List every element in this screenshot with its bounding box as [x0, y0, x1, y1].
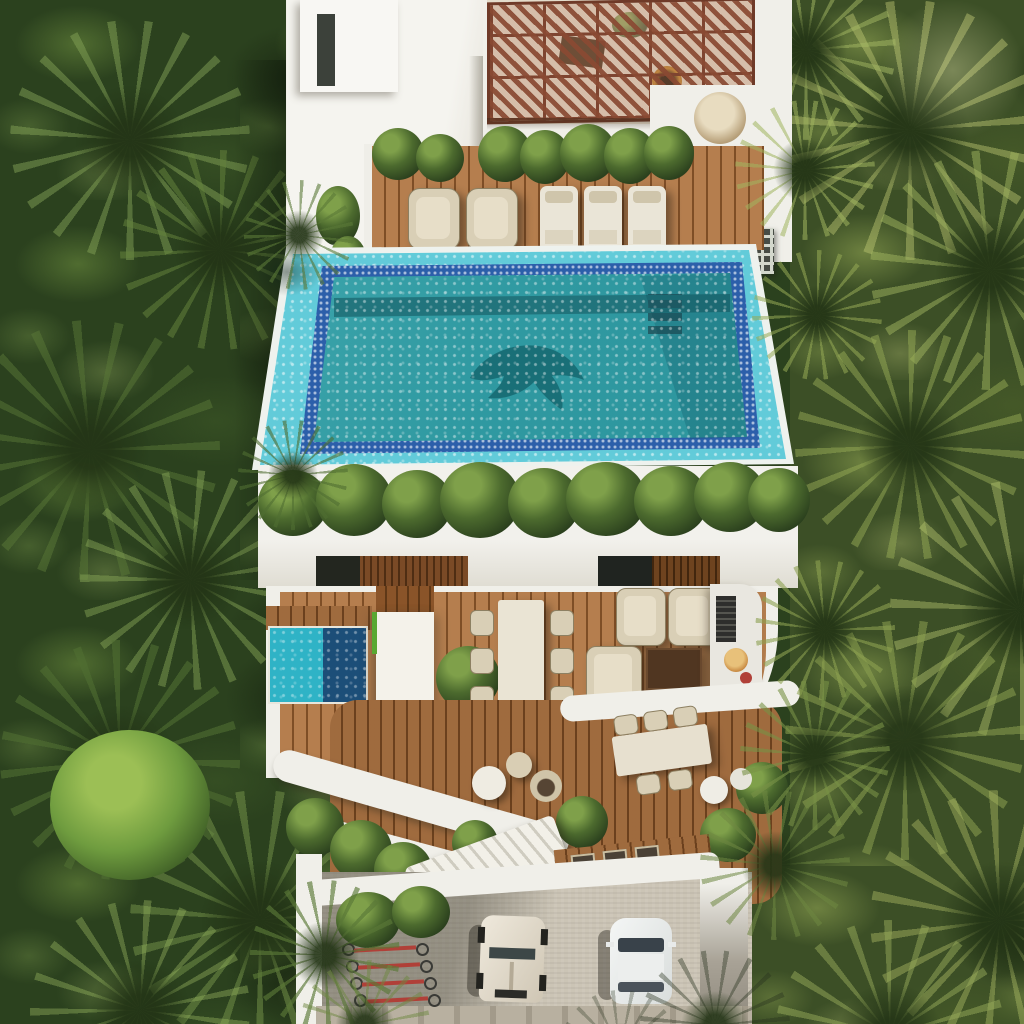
sun-lounger	[628, 186, 666, 252]
car-mirror	[668, 942, 676, 947]
round-planter	[700, 776, 728, 804]
dining-chair	[470, 610, 494, 636]
window-glass	[316, 556, 360, 590]
lounge-armchair	[616, 588, 666, 646]
car-wheel	[476, 973, 484, 989]
round-pouf	[506, 752, 532, 778]
round-chair	[530, 770, 562, 802]
window-glass	[598, 556, 652, 590]
bright-bush-corner	[50, 730, 210, 880]
sun-lounger	[540, 186, 578, 252]
armchair-cushion	[416, 197, 450, 239]
round-pouf	[472, 766, 506, 800]
car-grille	[495, 989, 527, 998]
car-wheel	[541, 929, 549, 945]
hedge-plant	[748, 468, 810, 532]
lower-dining-chair	[642, 709, 669, 732]
bike-wheel	[416, 943, 429, 956]
lower-dining-chair	[635, 773, 662, 796]
bike-wheel	[428, 994, 441, 1007]
green-trim	[372, 612, 377, 654]
food-platter	[724, 648, 748, 672]
armchair-cushion	[474, 197, 508, 239]
dining-chair	[550, 648, 574, 674]
dining-chair	[470, 648, 494, 674]
hanging-chair	[694, 92, 746, 144]
classic-car	[478, 915, 547, 1005]
grill	[716, 596, 736, 642]
lower-dining-chair	[667, 768, 694, 791]
roof-top-box	[300, 0, 398, 92]
plunge-pool-sparkle	[270, 628, 366, 702]
lower-deck-plant	[556, 796, 608, 848]
car-wheel	[539, 975, 547, 991]
rooftop-plant	[644, 126, 694, 180]
lower-dining-chair	[672, 705, 699, 728]
car-windshield	[489, 947, 535, 960]
coffee-table	[646, 648, 702, 690]
bike-wheel	[424, 977, 437, 990]
lounger-towel	[545, 230, 573, 244]
plunge-pool	[268, 626, 368, 704]
armchair-cushion	[676, 596, 708, 636]
sun-lounger	[584, 186, 622, 252]
lounger-pillow	[545, 191, 573, 203]
aerial-render-scene	[0, 0, 1024, 1024]
canopy-planter	[376, 586, 434, 614]
palm-frond	[735, 100, 875, 240]
dining-chair	[550, 610, 574, 636]
lounger-pillow	[589, 191, 617, 203]
car-mirror	[606, 942, 614, 947]
rooftop-armchair	[408, 188, 460, 250]
bike-wheel	[420, 960, 433, 973]
skylight-slot	[317, 14, 335, 86]
palm-frond	[238, 420, 348, 530]
rooftop-armchair	[466, 188, 518, 250]
lounger-towel	[633, 230, 661, 244]
lounger-towel	[589, 230, 617, 244]
driveway-plant	[392, 886, 450, 938]
car-wheel	[478, 927, 486, 943]
armchair-cushion	[624, 596, 656, 636]
car-windshield	[618, 938, 664, 952]
rooftop-plant	[416, 134, 464, 182]
lounger-pillow	[633, 191, 661, 203]
lower-dining-chair	[613, 713, 640, 736]
